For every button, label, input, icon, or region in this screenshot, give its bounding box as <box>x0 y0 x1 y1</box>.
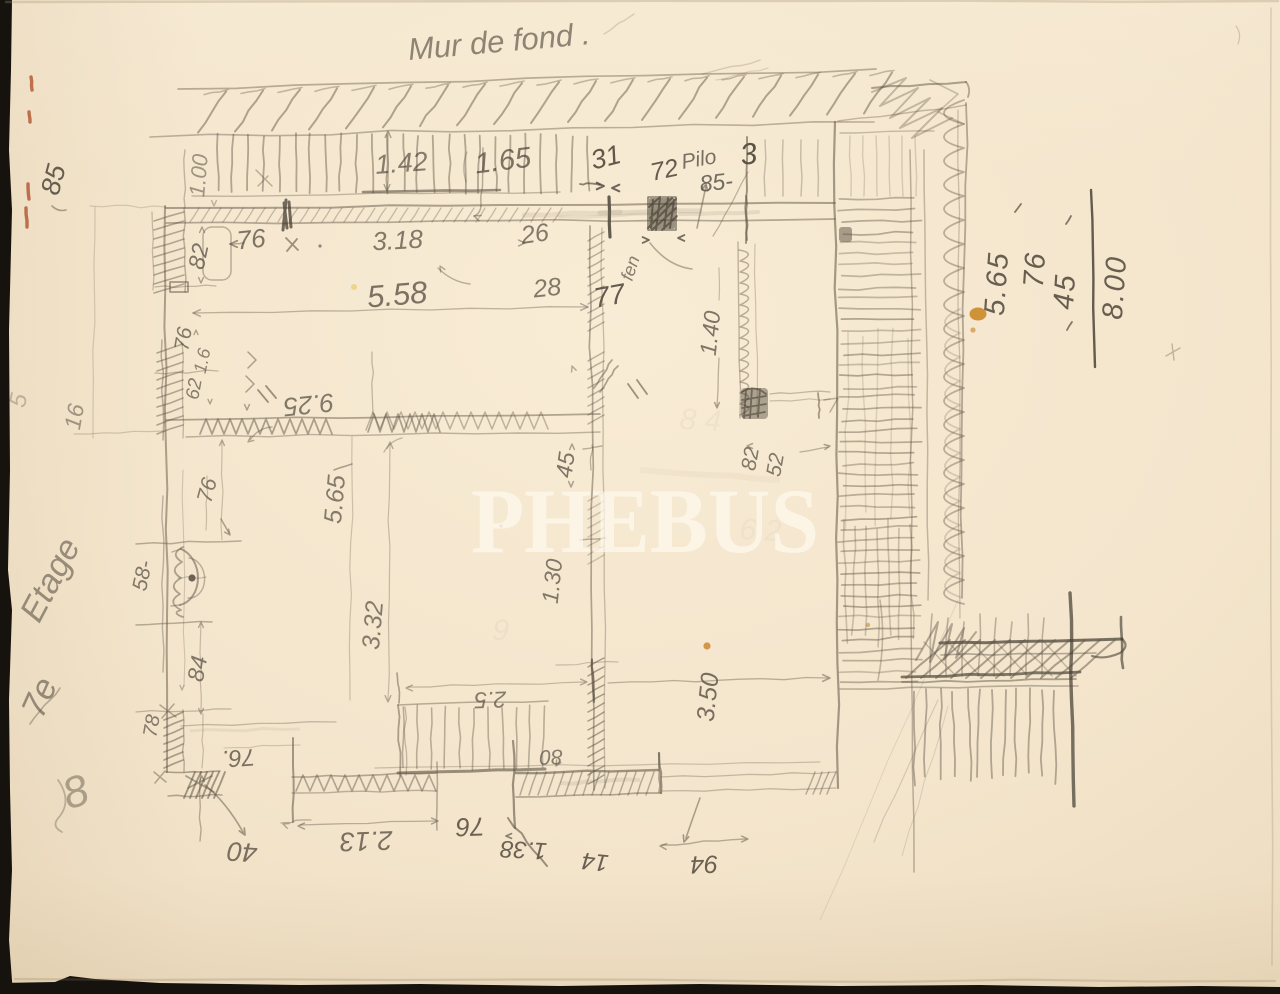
svg-text:1.38: 1.38 <box>499 835 548 864</box>
svg-text:5.65: 5.65 <box>979 250 1015 317</box>
svg-text:94: 94 <box>690 850 719 879</box>
svg-text:26: 26 <box>518 218 551 250</box>
svg-text:28: 28 <box>531 273 563 304</box>
svg-text:9: 9 <box>491 614 510 648</box>
svg-text:3.50: 3.50 <box>692 671 725 722</box>
svg-text:62: 62 <box>182 376 206 401</box>
svg-text:9.25: 9.25 <box>282 387 336 422</box>
svg-text:PHEBUS: PHEBUS <box>471 470 819 572</box>
svg-text:5.65: 5.65 <box>319 474 351 525</box>
svg-text:8.00: 8.00 <box>1097 254 1133 321</box>
svg-text:82: 82 <box>737 445 764 472</box>
svg-text:76: 76 <box>235 223 267 256</box>
svg-text:76: 76 <box>455 811 485 842</box>
svg-text:1.42: 1.42 <box>374 146 429 180</box>
svg-text:1.00: 1.00 <box>184 152 213 198</box>
svg-text:1.40: 1.40 <box>695 309 726 356</box>
svg-text:72: 72 <box>648 154 681 187</box>
svg-text:8 4: 8 4 <box>679 403 722 438</box>
svg-text:76: 76 <box>1018 250 1052 288</box>
svg-text:5.58: 5.58 <box>366 274 430 314</box>
svg-text:16: 16 <box>59 402 89 432</box>
svg-text:3.18: 3.18 <box>371 224 424 257</box>
svg-text:85-: 85- <box>698 167 734 196</box>
svg-text:14: 14 <box>581 847 610 877</box>
svg-text:40: 40 <box>226 836 258 868</box>
svg-text:78: 78 <box>139 713 165 739</box>
svg-text:80: 80 <box>539 745 563 769</box>
svg-text:3.32: 3.32 <box>357 600 389 651</box>
svg-text:76: 76 <box>170 325 197 352</box>
svg-text:45: 45 <box>1048 272 1082 310</box>
svg-text:84: 84 <box>182 654 212 684</box>
svg-text:2.13: 2.13 <box>340 825 395 857</box>
svg-text:2.5: 2.5 <box>474 686 508 713</box>
